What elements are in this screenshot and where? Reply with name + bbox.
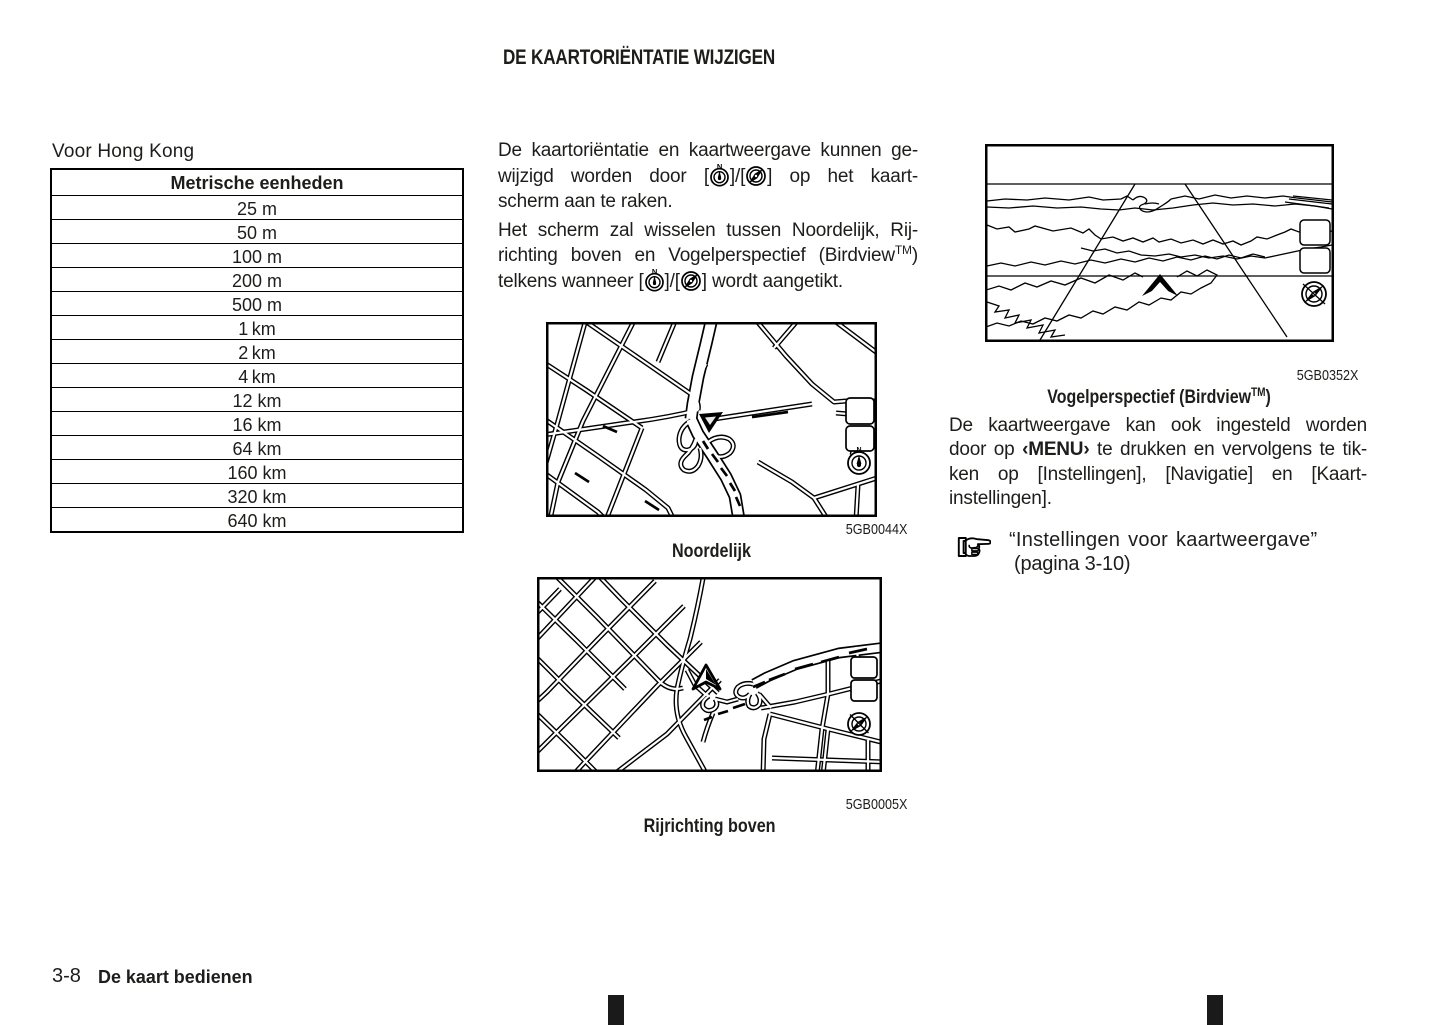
svg-text:N: N <box>856 447 861 454</box>
svg-text:N: N <box>717 163 722 171</box>
svg-text:N: N <box>651 268 656 276</box>
